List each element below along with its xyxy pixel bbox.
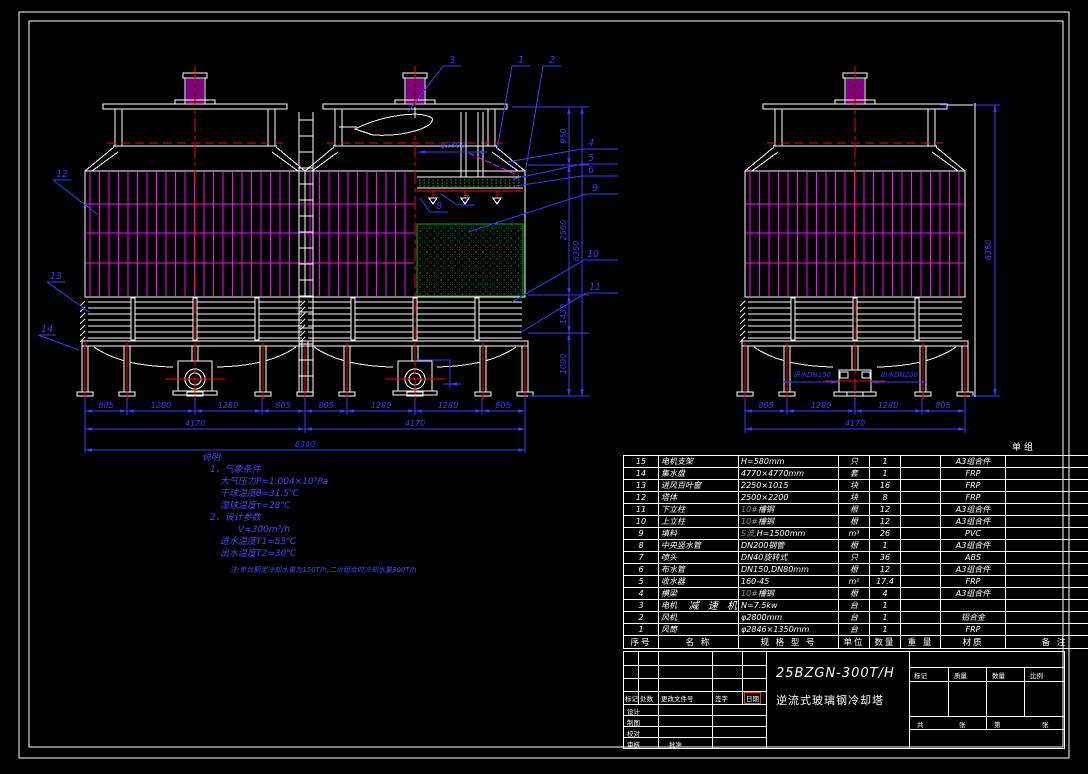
tb-sheet-total-label: 共 <box>917 719 924 729</box>
table-cell <box>1006 552 1088 564</box>
dim-text: 9 <box>592 183 598 194</box>
note-line: 出水温度T2=30℃ <box>200 548 530 560</box>
titleblock-line <box>624 678 766 679</box>
tb-approve-label: 批准 <box>669 739 682 749</box>
table-cell <box>901 456 941 468</box>
dim-text: 13 <box>50 271 62 282</box>
table-cell: 8 <box>624 540 659 552</box>
table-cell <box>901 528 941 540</box>
table-cell: 10#槽钢 <box>739 504 839 516</box>
table-cell <box>901 540 941 552</box>
titleblock-line <box>624 665 766 666</box>
table-cell <box>901 624 941 636</box>
table-cell: m³ <box>839 528 870 540</box>
tb-sheet-no-label: 第 <box>994 719 1001 729</box>
table-cell: 2 <box>624 612 659 624</box>
table-cell: 12 <box>870 504 901 516</box>
table-cell <box>1006 624 1088 636</box>
table-cell: FRP <box>941 492 1006 504</box>
table-row: 1风筒φ2846×1350mm台1FRP <box>624 624 1088 636</box>
titleblock-line <box>909 729 1064 730</box>
dim-text: 1280 <box>811 401 831 410</box>
table-cell <box>901 600 941 612</box>
table-cell: 17.4 <box>870 576 901 588</box>
table-row: 8中央竖水管DN200钢管根1A3组合件 <box>624 540 1088 552</box>
table-cell: FRP <box>941 624 1006 636</box>
table-row: 7喷头DN40旋转式只36ABS <box>624 552 1088 564</box>
tower-view <box>77 66 313 401</box>
dim-text: φ2800 <box>440 141 466 150</box>
tb-date-label: 日期 <box>744 692 761 704</box>
titleblock-line <box>909 667 1064 668</box>
dim-text: 4170 <box>185 419 205 428</box>
table-cell: 15 <box>624 456 659 468</box>
dim-text: 4 <box>588 138 594 149</box>
dim-text: 11 <box>589 282 601 293</box>
titleblock-line <box>658 652 659 748</box>
table-cell: 台 <box>839 600 870 612</box>
table-cell: 26 <box>870 528 901 540</box>
table-cell: FRP <box>941 480 1006 492</box>
table-cell: 风筒 <box>659 624 739 636</box>
table-cell <box>1006 576 1088 588</box>
table-row: 11下立柱10#槽钢根12A3组合件 <box>624 504 1088 516</box>
dim-text: 进水DN150 <box>793 371 832 379</box>
table-cell: m² <box>839 576 870 588</box>
table-row: 10上立柱10#槽钢根12A3组合件 <box>624 516 1088 528</box>
table-cell: 4770×4770mm <box>739 468 839 480</box>
table-cell <box>1006 564 1088 576</box>
tower-view <box>737 66 973 401</box>
table-cell: ABS <box>941 552 1006 564</box>
dim-text: 4170 <box>845 419 865 428</box>
table-cell <box>901 492 941 504</box>
table-cell: 13 <box>624 480 659 492</box>
table-cell: 12 <box>870 564 901 576</box>
table-cell: 单位 <box>839 636 870 649</box>
table-cell: 喷头 <box>659 552 739 564</box>
table-cell: 电机支架 <box>659 456 739 468</box>
table-cell: 9 <box>624 528 659 540</box>
table-cell: 套 <box>839 468 870 480</box>
dim-text: 1000 <box>559 354 568 374</box>
parts-table: 15电机支架H=580mm只1A3组合件14集水盘4770×4770mm套1FR… <box>623 455 1088 649</box>
table-cell <box>1006 456 1088 468</box>
note-line: 说明: <box>200 452 530 464</box>
dim-text: 2 <box>549 55 555 66</box>
table-row: 2风机φ2800mm台1铝合金 <box>624 612 1088 624</box>
table-row: 6布水管DN150,DN80mm根12A3组合件 <box>624 564 1088 576</box>
table-cell: DN200钢管 <box>739 540 839 552</box>
table-cell: A3组合件 <box>941 540 1006 552</box>
dim-text: 4170 <box>405 419 425 428</box>
titleblock-line <box>624 704 766 705</box>
table-cell: FRP <box>941 576 1006 588</box>
table-cell <box>1006 588 1088 600</box>
table-cell: 根 <box>839 504 870 516</box>
dim-text: 5 <box>588 153 594 164</box>
table-cell <box>1006 540 1088 552</box>
title-block: 标记 处数 更改文件号 签字 日期 设计 制图 校对 审核 批准 标记 质量 数… <box>623 651 1065 749</box>
titleblock-line <box>624 691 766 692</box>
tb-sheet-unit1-label: 张 <box>959 719 966 729</box>
tb-scale-label: 比例 <box>1030 670 1043 680</box>
table-cell: 只 <box>839 552 870 564</box>
table-row: 14集水盘4770×4770mm套1FRP <box>624 468 1088 480</box>
table-cell: A3组合件 <box>941 564 1006 576</box>
dim-text: 805 <box>495 401 510 410</box>
table-cell: H=580mm <box>739 456 839 468</box>
table-cell: 重 量 <box>901 636 941 649</box>
dim-text: 1280 <box>371 401 391 410</box>
table-cell: 2250×1015 <box>739 480 839 492</box>
table-cell <box>1006 612 1088 624</box>
table-cell: 36 <box>870 552 901 564</box>
table-cell: 1 <box>870 456 901 468</box>
table-cell <box>1006 492 1088 504</box>
notes-block: 说明:1、气象条件大气压力P=1.004×10⁵Pa干球温度θ=31.5℃湿球温… <box>200 452 530 576</box>
table-cell: 只 <box>839 456 870 468</box>
table-cell: 1 <box>870 624 901 636</box>
dim-text: 805 <box>98 401 113 410</box>
table-cell: 名 称 <box>659 636 739 649</box>
dim-text: 2500 <box>559 220 568 240</box>
table-cell: 集水盘 <box>659 468 739 480</box>
table-cell <box>1006 528 1088 540</box>
table-cell: 布水管 <box>659 564 739 576</box>
table-cell <box>1006 468 1088 480</box>
table-cell: 进风百叶窗 <box>659 480 739 492</box>
dim-text: 1280 <box>878 401 898 410</box>
tower-view <box>297 66 533 401</box>
drawing-model-title: 25BZGN-300T/H <box>776 666 895 681</box>
note-line: 进水温度T1=55℃ <box>200 536 530 548</box>
table-row: 3电机减 速 机N=7.5kw台1 <box>624 600 1088 612</box>
table-cell: A3组合件 <box>941 516 1006 528</box>
table-cell <box>941 600 1006 612</box>
table-row: 9填料S波,H=1500mmm³26PVC <box>624 528 1088 540</box>
dim-text: 805 <box>318 401 333 410</box>
note-line: 大气压力P=1.004×10⁵Pa <box>200 476 530 488</box>
dim-text: 950 <box>559 128 568 143</box>
table-cell: 块 <box>839 480 870 492</box>
table-cell: 16 <box>870 480 901 492</box>
table-cell: 台 <box>839 624 870 636</box>
dim-text: 3 <box>449 55 455 66</box>
table-cell <box>1006 480 1088 492</box>
table-cell: 风机 <box>659 612 739 624</box>
table-cell: 6 <box>624 564 659 576</box>
table-cell: 3 <box>624 600 659 612</box>
table-cell: φ2846×1350mm <box>739 624 839 636</box>
titleblock-line <box>909 681 1064 682</box>
dim-text: 1280 <box>218 401 238 410</box>
titleblock-line <box>624 715 766 716</box>
table-cell: 5 <box>624 576 659 588</box>
table-cell <box>901 516 941 528</box>
dim-text: 1 <box>518 55 524 66</box>
cad-canvas: 8051280128080580512801280805417041708340… <box>0 0 1088 774</box>
table-row: 15电机支架H=580mm只1A3组合件 <box>624 456 1088 468</box>
table-row: 12塔体2500×2200块8FRP <box>624 492 1088 504</box>
dim-text: 8340 <box>295 440 315 449</box>
table-cell: 160-45 <box>739 576 839 588</box>
table-cell: 10#槽钢 <box>739 588 839 600</box>
tb-audit-label: 审核 <box>627 739 640 749</box>
table-cell: DN40旋转式 <box>739 552 839 564</box>
table-cell <box>901 504 941 516</box>
table-cell: 台 <box>839 612 870 624</box>
table-cell: 1 <box>624 624 659 636</box>
table-cell: PVC <box>941 528 1006 540</box>
tb-sign-label: 签字 <box>715 693 728 703</box>
tb-sheet-unit2-label: 张 <box>1042 719 1049 729</box>
dim-text: 7 <box>463 194 469 205</box>
table-cell: DN150,DN80mm <box>739 564 839 576</box>
dim-text: 805 <box>935 401 950 410</box>
note-line: 湿球温度τ=28℃ <box>200 500 530 512</box>
dim-text: 10 <box>587 249 599 260</box>
table-cell: 根 <box>839 588 870 600</box>
table-cell: 14 <box>624 468 659 480</box>
table-cell <box>901 468 941 480</box>
table-cell: 4 <box>870 588 901 600</box>
titleblock-line <box>909 716 1064 717</box>
part-leaders: 3121213144569101178 <box>38 55 618 350</box>
table-cell: 填料 <box>659 528 739 540</box>
table-cell: 序号 <box>624 636 659 649</box>
note-line: 注:单台额定冷却水量为150T/h,二台组合时冷却水量300T/h <box>200 564 530 576</box>
dim-text: 6360 <box>572 241 581 261</box>
table-cell: 12 <box>624 492 659 504</box>
table-cell: 上立柱 <box>659 516 739 528</box>
table-cell: 电机减 速 机 <box>659 600 739 612</box>
table-cell: 1 <box>870 540 901 552</box>
table-cell <box>1006 600 1088 612</box>
table-cell: 10 <box>624 516 659 528</box>
titleblock-line <box>948 667 949 716</box>
table-cell: 2500×2200 <box>739 492 839 504</box>
titleblock-line <box>624 737 766 738</box>
dim-text: 8 <box>436 201 442 212</box>
table-cell: 11 <box>624 504 659 516</box>
table-row: 5收水器160-45m²17.4FRP <box>624 576 1088 588</box>
note-line: 1、气象条件 <box>200 464 530 476</box>
dim-text: 6360 <box>984 240 993 260</box>
tb-count-label: 处数 <box>640 693 653 703</box>
dim-text: 12 <box>56 169 68 180</box>
table-cell: 塔体 <box>659 492 739 504</box>
table-cell <box>1006 504 1088 516</box>
table-cell: N=7.5kw <box>739 600 839 612</box>
table-cell <box>901 480 941 492</box>
tb-changefile-label: 更改文件号 <box>661 693 694 703</box>
dim-text: 805 <box>275 401 290 410</box>
table-row: 4横梁10#槽钢根4A3组合件 <box>624 588 1088 600</box>
tb-mark-label: 标记 <box>625 693 638 703</box>
table-cell: 7 <box>624 552 659 564</box>
dim-text: 6 <box>588 165 594 176</box>
table-cell: 根 <box>839 564 870 576</box>
table-cell <box>901 576 941 588</box>
note-line: V=300m³/h <box>200 524 530 536</box>
table-cell: 收水器 <box>659 576 739 588</box>
titleblock-line <box>624 726 766 727</box>
table-cell: FRP <box>941 468 1006 480</box>
table-cell: 规 格 型 号 <box>739 636 839 649</box>
table-cell: 块 <box>839 492 870 504</box>
table-cell: 1 <box>870 468 901 480</box>
tb-qty-label: 数量 <box>992 670 1005 680</box>
dim-text: 出水DN200 <box>880 371 919 379</box>
drawing-name-title: 逆流式玻璃钢冷却塔 <box>776 692 884 708</box>
table-cell: 下立柱 <box>659 504 739 516</box>
titleblock-line <box>986 667 987 729</box>
dim-text: 1280 <box>151 401 171 410</box>
table-cell <box>901 552 941 564</box>
table-cell: A3组合件 <box>941 588 1006 600</box>
table-cell: 根 <box>839 516 870 528</box>
table-cell <box>901 564 941 576</box>
note-line: 干球温度θ=31.5℃ <box>200 488 530 500</box>
table-cell: 中央竖水管 <box>659 540 739 552</box>
unit-group-label: 单组 <box>1012 440 1036 453</box>
table-cell: 横梁 <box>659 588 739 600</box>
table-cell: A3组合件 <box>941 456 1006 468</box>
titleblock-line <box>1024 667 1025 716</box>
note-line: 2、设计参数 <box>200 512 530 524</box>
table-cell: 10#槽钢 <box>739 516 839 528</box>
table-cell: φ2800mm <box>739 612 839 624</box>
table-cell: 数量 <box>870 636 901 649</box>
overlay-text: 减 速 机 <box>689 600 739 612</box>
table-cell: 根 <box>839 540 870 552</box>
table-cell <box>901 588 941 600</box>
tb-stage-label: 标记 <box>914 670 927 680</box>
table-row: 13进风百叶窗2250×1015块16FRP <box>624 480 1088 492</box>
table-cell: 1 <box>870 612 901 624</box>
table-cell: A3组合件 <box>941 504 1006 516</box>
table-header-row: 序号名 称规 格 型 号单位数量重 量材质备 注 <box>624 636 1088 649</box>
table-cell: 4 <box>624 588 659 600</box>
titleblock-line <box>766 652 767 748</box>
table-cell: 材质 <box>941 636 1006 649</box>
dim-text: 1280 <box>438 401 458 410</box>
table-cell: 12 <box>870 516 901 528</box>
table-cell: 备 注 <box>1006 636 1088 649</box>
table-cell <box>1006 516 1088 528</box>
table-cell: 1 <box>870 600 901 612</box>
table-cell: S波,H=1500mm <box>739 528 839 540</box>
tb-weight-label: 质量 <box>954 670 967 680</box>
table-cell <box>901 612 941 624</box>
dim-text: 14 <box>41 324 53 335</box>
table-cell: 8 <box>870 492 901 504</box>
dim-text: 805 <box>758 401 773 410</box>
table-cell: 铝合金 <box>941 612 1006 624</box>
titleblock-line <box>712 652 713 748</box>
